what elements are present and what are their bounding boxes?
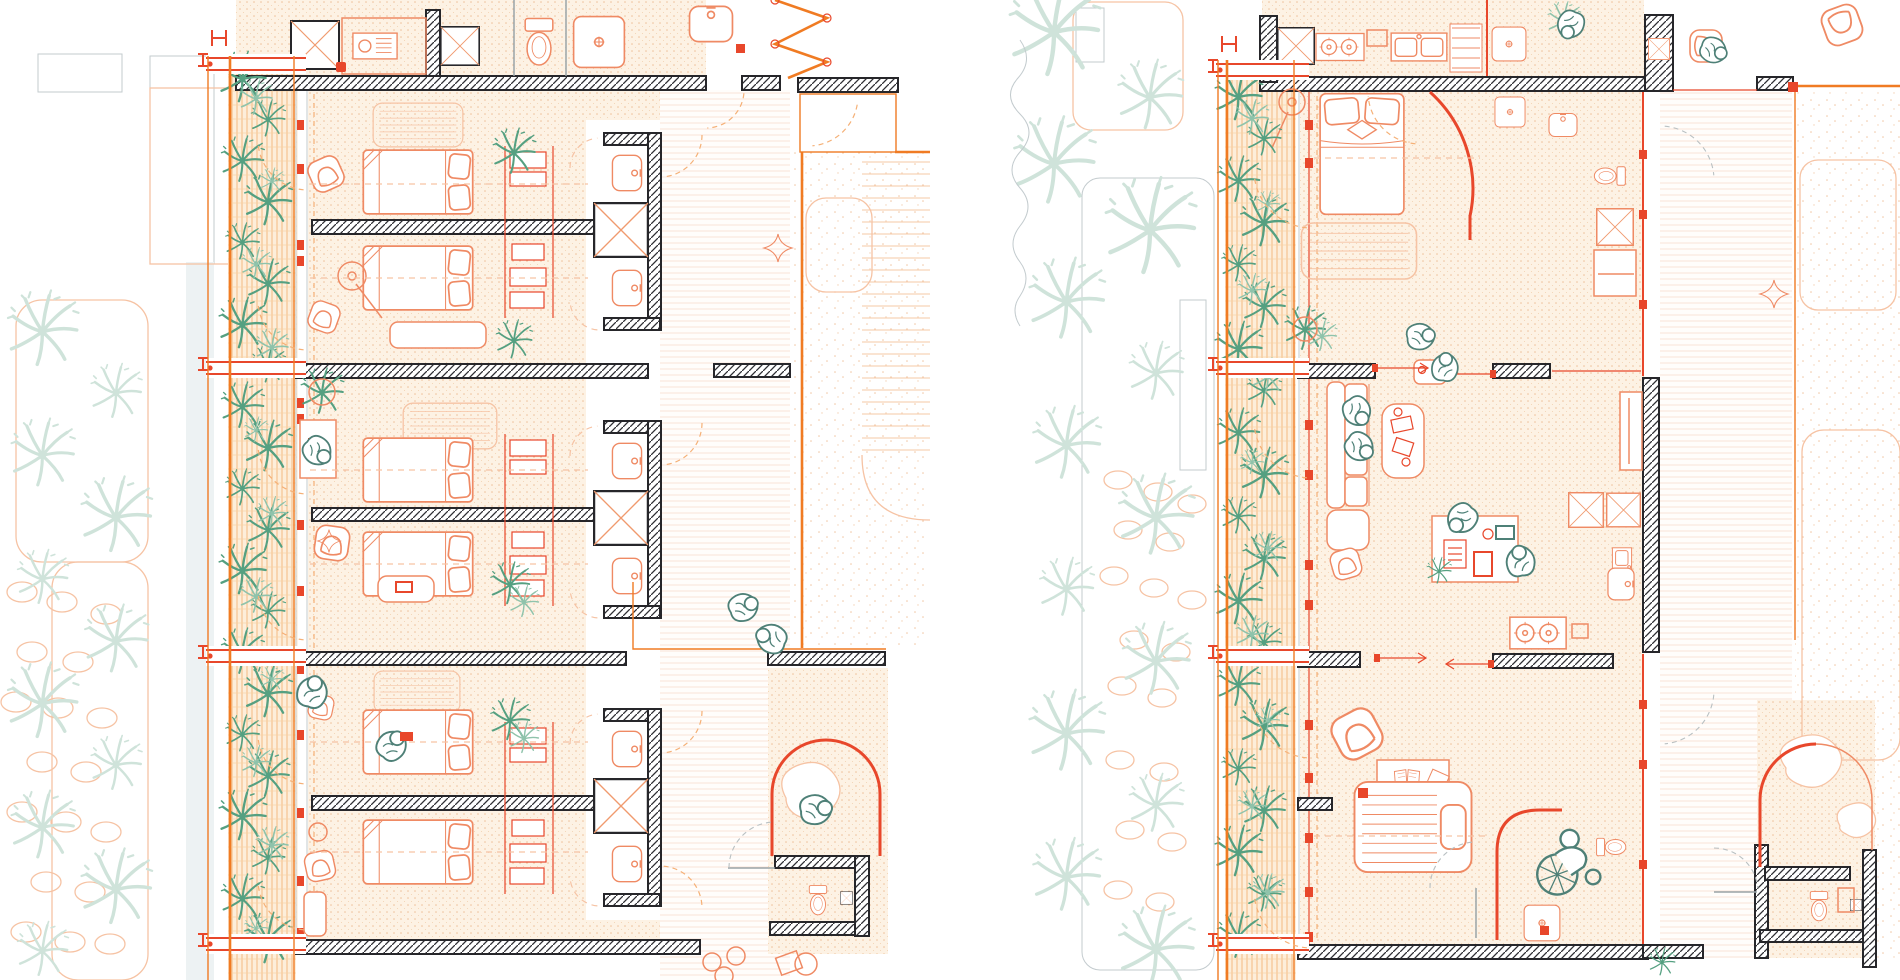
util-strip-c-box [510, 748, 546, 762]
chair-r6 [303, 849, 337, 883]
tall-cabinet-living-box [1620, 392, 1642, 470]
bg-palms-left-item [11, 418, 74, 485]
bg-palms-right-mid-item [1040, 558, 1094, 615]
window-clips-left-item [297, 730, 304, 740]
bg-palms-left-item [91, 736, 142, 789]
wall-left-top-a [236, 76, 706, 90]
stove-right-top [1316, 34, 1364, 61]
toilet-bath-col [1594, 167, 1625, 185]
window-clips-right-item [1305, 833, 1313, 843]
bg-palms-right-mid-item [1030, 258, 1105, 337]
bed-lower-right [1354, 782, 1471, 872]
window-clips-left-item [297, 586, 304, 596]
window-clips-right-item [1305, 420, 1313, 430]
red-utility-ticks-1643-item [1639, 860, 1647, 869]
bg-stones-right-item [1106, 751, 1134, 769]
floor-left-stair-landing [800, 94, 896, 152]
wall-landing [798, 78, 898, 92]
red-utility-ticks-1643-item [1639, 300, 1647, 309]
armchair-r4 [313, 524, 351, 562]
bg-stones-right-item [1150, 763, 1178, 781]
window-clips-left-item [297, 520, 304, 530]
plan-layers [1, 0, 1900, 980]
wall-arch-toilet-bottom [770, 922, 855, 935]
floor-plan-drawing [0, 0, 1900, 980]
bg-palms-left-item [18, 922, 69, 975]
bg-stones-left-item [91, 822, 121, 842]
window-clips-left-item [297, 876, 304, 886]
bg-palms-left-item [82, 848, 153, 922]
toilet-rarch [1810, 892, 1827, 921]
wall-right-w7-b [1643, 945, 1703, 958]
util-strip-c-box [510, 868, 544, 884]
laptop-desk [1496, 526, 1514, 539]
stove-lower [1510, 617, 1566, 649]
slider-right-w3-stop-a [1372, 364, 1378, 372]
divider-left-4 [198, 934, 306, 954]
bg-stones-right-item [1146, 893, 1174, 911]
window-clips-right-item [1305, 720, 1313, 730]
toilet-archroom-left [809, 886, 826, 915]
core-c-side [648, 709, 661, 906]
core-a-sink-2 [612, 270, 641, 305]
divider-left-3 [198, 646, 306, 666]
window-clips-right-item [1305, 773, 1313, 783]
wall-left-top-b [742, 76, 780, 90]
core-c-bottom [604, 894, 660, 906]
bg-stones-right-item [1158, 833, 1186, 851]
util-strip-b-box [510, 440, 546, 456]
sink-bath-col [1549, 114, 1577, 137]
wall-arch-toilet-side [855, 856, 869, 936]
red-utility-ticks-1643-item [1639, 700, 1647, 709]
cabinet-bath-col [1594, 250, 1636, 296]
door-panel-x-left [840, 892, 852, 904]
wall-right-w5-b [1493, 654, 1613, 668]
book-person-r5 [400, 732, 413, 741]
divider-left-2 [198, 358, 306, 378]
bg-palms-right-mid-item [1030, 690, 1105, 769]
core-b-sink-2 [612, 558, 641, 593]
window-clips-right-item [1305, 158, 1313, 168]
core-a-sink-1 [612, 155, 641, 190]
kitchen-x-right [1278, 28, 1314, 64]
stair-zigzag [775, 0, 827, 78]
bg-palms-right-mid-item [1123, 622, 1191, 693]
wall-rarch-bottom [1760, 930, 1863, 942]
bg-lattice-right [1180, 300, 1206, 470]
bg-lattice-left [150, 56, 214, 264]
wall-right-w3-a [1298, 364, 1375, 378]
bg-stones-right-item [1140, 579, 1168, 597]
bg-stones-right-item [1104, 471, 1132, 489]
bg-palms-right-mid [1030, 258, 1195, 980]
closet-x-bath-col [1597, 209, 1633, 245]
rug-blob-rarch-2 [1837, 803, 1875, 838]
bg-trees-right-top-item [1106, 177, 1196, 272]
bg-stones-left-item [63, 652, 93, 672]
microwave [353, 33, 397, 59]
bench-r2 [390, 322, 486, 348]
bg-stones-left-item [95, 934, 125, 954]
bg-bench-right [1076, 8, 1104, 62]
window-clips-left-item [297, 256, 304, 266]
window-clips-left-item [297, 808, 304, 818]
core-b-side [648, 421, 661, 618]
bg-trees-right-top-item [1118, 60, 1183, 128]
core-b-shower [594, 491, 648, 545]
bg-bench-left [38, 54, 122, 92]
core-c-shower [594, 779, 648, 833]
wall-right-kitchen-strip [1643, 378, 1659, 652]
wall-right-top [1260, 77, 1645, 91]
bg-stones-right-item [1178, 591, 1206, 609]
bench-left-margin [336, 62, 346, 72]
wall-arch-toilet-top [775, 856, 855, 868]
h-mark-left-top [212, 30, 226, 46]
sink-sq-bath-top [1495, 97, 1525, 127]
red-socket-2 [1540, 926, 1549, 935]
bg-palms-left-item [91, 364, 142, 417]
window-clips-right-item [1305, 600, 1313, 610]
double-sink-right [1391, 33, 1447, 61]
core-c-sink-1 [612, 731, 641, 766]
util-strip-b-box [510, 556, 546, 574]
landing-door-arc [812, 105, 857, 146]
toilet-lower-bath [1597, 838, 1626, 855]
window-clips-right-item [1305, 560, 1313, 570]
bg-stones-left-item [17, 642, 47, 662]
window-clips-left [297, 120, 304, 938]
red-socket-1 [736, 44, 745, 53]
wall-left-w5-arch [768, 652, 885, 665]
window-clips-right-item [1305, 887, 1313, 897]
util-strip-b-box [510, 460, 546, 474]
bg-stones-right-item [1116, 821, 1144, 839]
armchair-court-top [1818, 1, 1865, 48]
bg-palms-right-mid-item [1130, 342, 1184, 399]
red-box-bed [1358, 788, 1368, 798]
bg-stones-right-item [1100, 567, 1128, 585]
bg-stones-left-item [31, 872, 61, 892]
bg-trees-right-top-item [1010, 0, 1100, 74]
slider-right-w5-stop-a [1374, 654, 1380, 662]
bg-trees-right-top [1010, 0, 1196, 272]
util-strip-a-box [510, 268, 546, 286]
util-strip-c-box [512, 820, 544, 836]
red-utility-ticks-1643-item [1639, 760, 1647, 769]
window-clips-left-item [297, 120, 304, 130]
bg-stones-left-item [87, 708, 117, 728]
wall-left-w7 [296, 940, 700, 954]
kitchen-x-living-1 [1569, 493, 1604, 528]
util-strip-a-box [510, 292, 544, 308]
core-c-sink-2 [612, 846, 641, 881]
wall-right-w6-stub [1298, 798, 1332, 810]
cabinet-bath-col-box [1594, 250, 1636, 296]
bg-palms-left-item [8, 662, 79, 736]
divider-left-1 [198, 54, 306, 74]
sink-lower [1608, 568, 1634, 600]
sink-top-right-left-plan [690, 6, 733, 41]
bg-palms-right-mid-item [1033, 838, 1101, 909]
core-b-bottom [604, 606, 660, 618]
core-b-sink-1 [612, 443, 641, 478]
sofa-back-right [1327, 382, 1345, 508]
bg-wash-right [1082, 178, 1214, 970]
wall-right-w7-a [1298, 945, 1648, 959]
drainer-right [1450, 24, 1482, 72]
tall-cabinet-living [1620, 392, 1642, 470]
util-strip-b-box [512, 532, 544, 548]
closet-x-topwall [1648, 38, 1669, 59]
bg-palms-right-mid-item [1119, 906, 1194, 980]
bg-palms-right-mid-item [1033, 406, 1101, 477]
bg-stones-left-item [71, 762, 101, 782]
util-strip-a-box [510, 172, 546, 186]
wall-right-w3-b [1493, 364, 1550, 378]
bg-stones-right-item [1104, 881, 1132, 899]
sofa-chaise [1327, 510, 1369, 550]
bench-r6 [304, 892, 326, 936]
shower-lower-bath [1524, 905, 1560, 941]
wall-left-w5 [296, 652, 626, 665]
wall-rarch-top [1765, 867, 1850, 880]
bg-stones-left-item [1, 692, 31, 712]
bg-planter-left-1 [16, 300, 148, 562]
bed-r1 [363, 150, 472, 214]
slider-right-w5-stop-b [1488, 660, 1494, 668]
window-clips-right-item [1305, 470, 1313, 480]
util-strip-c-box [510, 844, 546, 862]
shower-right-top [1492, 27, 1526, 61]
window-clips-right-item [1305, 120, 1313, 130]
side-table-r4 [378, 576, 434, 602]
core-a-shower [594, 203, 648, 257]
wall-left-w3 [296, 364, 648, 378]
wall-left-kitchen-stub [426, 10, 440, 76]
bg-planter-outline-topleft [150, 88, 230, 264]
core-a-bottom [604, 318, 660, 330]
window-clips-left-item [297, 164, 304, 174]
kitchen-x-living-2 [1607, 493, 1641, 527]
window-clips-left-item [297, 240, 304, 250]
core-a-side [648, 133, 661, 330]
sofa-cushion-4 [1345, 477, 1367, 506]
h-mark-right-top [1222, 36, 1236, 52]
side-table-living [1382, 404, 1424, 478]
slider-right-w3-stop-b [1490, 370, 1496, 378]
red-utility-ticks-1643-item [1639, 150, 1647, 159]
door-panel-x-right [1850, 899, 1862, 911]
wardrobe-x-2 [441, 27, 479, 65]
floor-plan-canvas [0, 0, 1900, 980]
bg-palms-left [8, 290, 152, 974]
bg-palms-left-item [82, 476, 153, 550]
bg-stones-right-item [1108, 677, 1136, 695]
bg-palms-left-item [18, 550, 69, 603]
util-strip-a-box [512, 244, 544, 260]
bg-palms-left-item [8, 290, 79, 364]
wall-right-court-piece [1757, 77, 1793, 90]
bg-palms-left-item [85, 604, 148, 671]
red-corner-right [1788, 82, 1798, 92]
bed-right-top [1320, 94, 1404, 215]
shower-top-left [574, 17, 625, 68]
bg-palms-left-item [11, 790, 74, 857]
floor-left-courtyard-pave [862, 155, 930, 455]
wall-left-w3-corr [714, 364, 790, 377]
wall-rarch-right [1863, 850, 1876, 967]
toilet-top-left [525, 19, 553, 65]
red-utility-ticks-1643-item [1639, 210, 1647, 219]
